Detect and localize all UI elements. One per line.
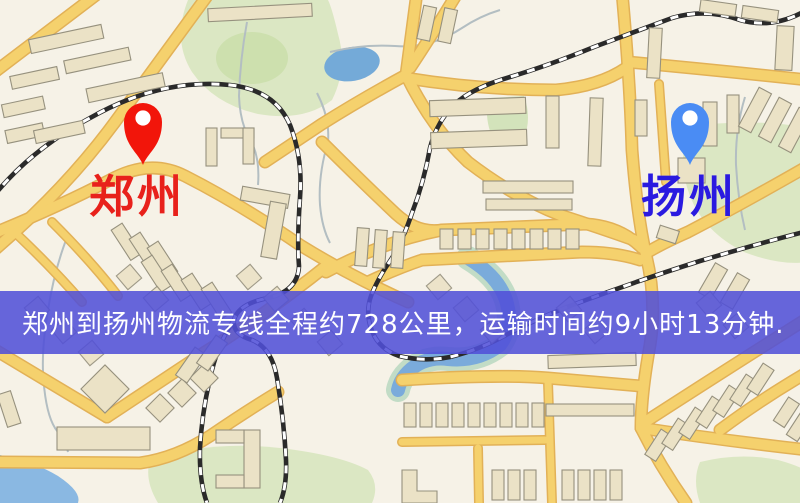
destination-city-label: 扬州	[641, 174, 737, 219]
origin-city-label: 郑州	[89, 174, 185, 219]
map-screenshot: 郑州 扬州 郑州到扬州物流专线全程约728公里，运输时间约9小时13分钟.	[0, 0, 800, 503]
route-info-text: 郑州到扬州物流专线全程约728公里，运输时间约9小时13分钟.	[0, 304, 785, 341]
route-info-banner: 郑州到扬州物流专线全程约728公里，运输时间约9小时13分钟.	[0, 291, 800, 354]
map-canvas[interactable]	[0, 0, 800, 503]
